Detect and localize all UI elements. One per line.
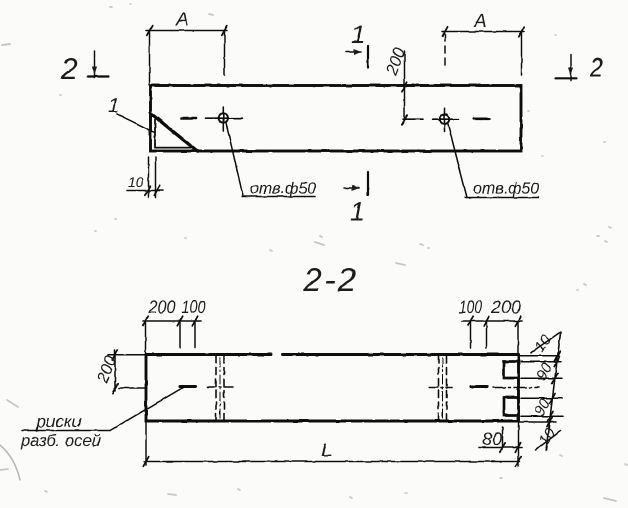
svg-text:200: 200 bbox=[382, 45, 409, 79]
svg-text:отв.ф50: отв.ф50 bbox=[473, 181, 539, 198]
svg-text:200: 200 bbox=[490, 297, 521, 317]
svg-text:10: 10 bbox=[536, 425, 560, 449]
svg-text:10: 10 bbox=[531, 331, 555, 355]
svg-text:2-2: 2-2 bbox=[302, 261, 358, 298]
svg-text:100: 100 bbox=[459, 297, 482, 317]
svg-text:100: 100 bbox=[182, 297, 206, 317]
svg-text:1: 1 bbox=[350, 197, 364, 227]
svg-text:90: 90 bbox=[533, 360, 556, 383]
svg-text:200: 200 bbox=[148, 297, 176, 317]
svg-text:2: 2 bbox=[589, 53, 603, 83]
svg-text:отв.ф50: отв.ф50 bbox=[250, 181, 316, 198]
svg-text:риски: риски bbox=[36, 412, 82, 431]
svg-text:L: L bbox=[321, 440, 333, 460]
svg-text:A: A bbox=[175, 10, 189, 31]
svg-text:A: A bbox=[473, 11, 487, 32]
svg-text:1: 1 bbox=[351, 19, 365, 49]
svg-text:10: 10 bbox=[128, 174, 144, 190]
svg-text:200: 200 bbox=[93, 353, 120, 387]
svg-text:80: 80 bbox=[482, 429, 502, 449]
svg-text:разб. осей: разб. осей bbox=[20, 432, 101, 450]
svg-text:2: 2 bbox=[60, 53, 78, 86]
